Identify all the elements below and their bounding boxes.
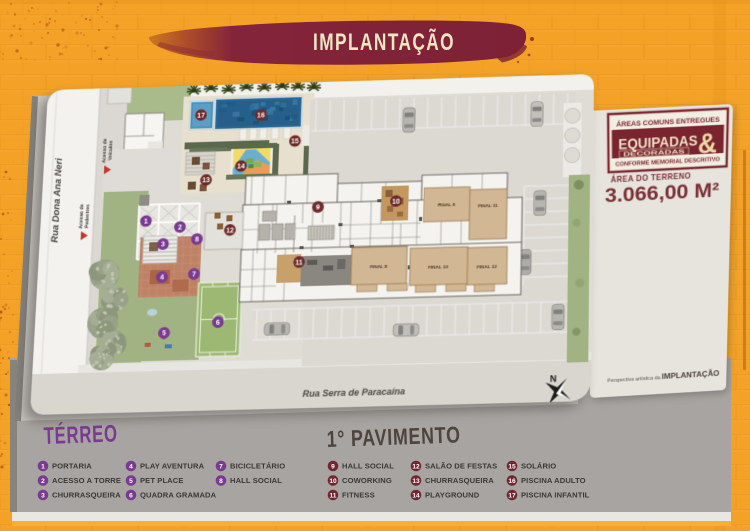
svg-text:4: 4 <box>160 274 164 281</box>
svg-text:8: 8 <box>219 478 223 485</box>
svg-text:7: 7 <box>192 271 196 278</box>
svg-text:10: 10 <box>329 478 337 485</box>
svg-text:3: 3 <box>41 492 45 499</box>
svg-text:9: 9 <box>331 463 335 470</box>
svg-text:&: & <box>698 128 718 160</box>
svg-text:17: 17 <box>508 492 516 499</box>
svg-text:3: 3 <box>161 241 165 248</box>
svg-text:Veículos: Veículos <box>107 140 114 160</box>
svg-text:CHURRASQUEIRA: CHURRASQUEIRA <box>52 491 121 500</box>
svg-text:1: 1 <box>41 463 45 470</box>
svg-text:1: 1 <box>144 218 148 225</box>
svg-text:SOLÁRIO: SOLÁRIO <box>521 462 556 471</box>
svg-text:PET PLACE: PET PLACE <box>140 476 184 485</box>
svg-text:11: 11 <box>330 492 337 499</box>
svg-text:Pedestres: Pedestres <box>84 204 91 228</box>
svg-text:15: 15 <box>508 463 516 470</box>
svg-text:13: 13 <box>412 478 420 485</box>
svg-text:10: 10 <box>392 198 400 205</box>
svg-text:13: 13 <box>202 177 210 184</box>
svg-text:11: 11 <box>295 259 303 266</box>
svg-text:HALL SOCIAL: HALL SOCIAL <box>230 476 282 485</box>
svg-text:8: 8 <box>195 236 199 243</box>
svg-text:COWORKING: COWORKING <box>342 476 392 485</box>
svg-text:9: 9 <box>316 204 320 211</box>
svg-text:6: 6 <box>216 319 220 326</box>
svg-text:7: 7 <box>219 463 223 470</box>
svg-text:TÉRREO: TÉRREO <box>43 419 118 450</box>
svg-text:FINAL 9: FINAL 9 <box>438 202 456 208</box>
svg-text:PISCINA ADULTO: PISCINA ADULTO <box>521 476 586 485</box>
svg-text:5: 5 <box>162 330 166 337</box>
svg-text:PLAY AVENTURA: PLAY AVENTURA <box>140 462 205 471</box>
svg-text:FINAL 12: FINAL 12 <box>477 264 498 270</box>
svg-text:PLAYGROUND: PLAYGROUND <box>425 491 480 500</box>
svg-text:17: 17 <box>197 112 205 119</box>
svg-text:FINAL 11: FINAL 11 <box>478 203 498 209</box>
svg-text:SALÃO DE FESTAS: SALÃO DE FESTAS <box>425 462 497 471</box>
svg-text:2: 2 <box>178 224 182 231</box>
svg-text:14: 14 <box>412 492 420 499</box>
svg-text:PISCINA INFANTIL: PISCINA INFANTIL <box>521 491 590 500</box>
svg-text:ACESSO A TORRE: ACESSO A TORRE <box>52 476 121 485</box>
svg-text:BICICLETÁRIO: BICICLETÁRIO <box>230 462 285 471</box>
svg-text:CHURRASQUEIRA: CHURRASQUEIRA <box>425 476 494 485</box>
svg-text:QUADRA GRAMADA: QUADRA GRAMADA <box>140 491 217 500</box>
svg-text:12: 12 <box>226 227 234 234</box>
svg-text:HALL SOCIAL: HALL SOCIAL <box>342 462 394 471</box>
svg-text:N: N <box>550 373 557 384</box>
svg-text:14: 14 <box>237 163 245 170</box>
svg-text:IMPLANTAÇÃO: IMPLANTAÇÃO <box>313 28 455 56</box>
svg-text:6: 6 <box>129 492 133 499</box>
svg-text:12: 12 <box>412 463 420 470</box>
svg-text:4: 4 <box>129 463 133 470</box>
svg-text:16: 16 <box>508 478 516 485</box>
svg-text:FINAL 8: FINAL 8 <box>370 264 388 270</box>
svg-text:15: 15 <box>291 138 299 145</box>
svg-text:PORTARIA: PORTARIA <box>52 462 92 471</box>
svg-text:2: 2 <box>41 478 45 485</box>
svg-text:1° PAVIMENTO: 1° PAVIMENTO <box>326 421 461 452</box>
svg-text:FITNESS: FITNESS <box>342 491 375 500</box>
svg-text:FINAL 10: FINAL 10 <box>428 264 449 270</box>
svg-text:5: 5 <box>129 478 133 485</box>
svg-text:16: 16 <box>257 112 265 119</box>
